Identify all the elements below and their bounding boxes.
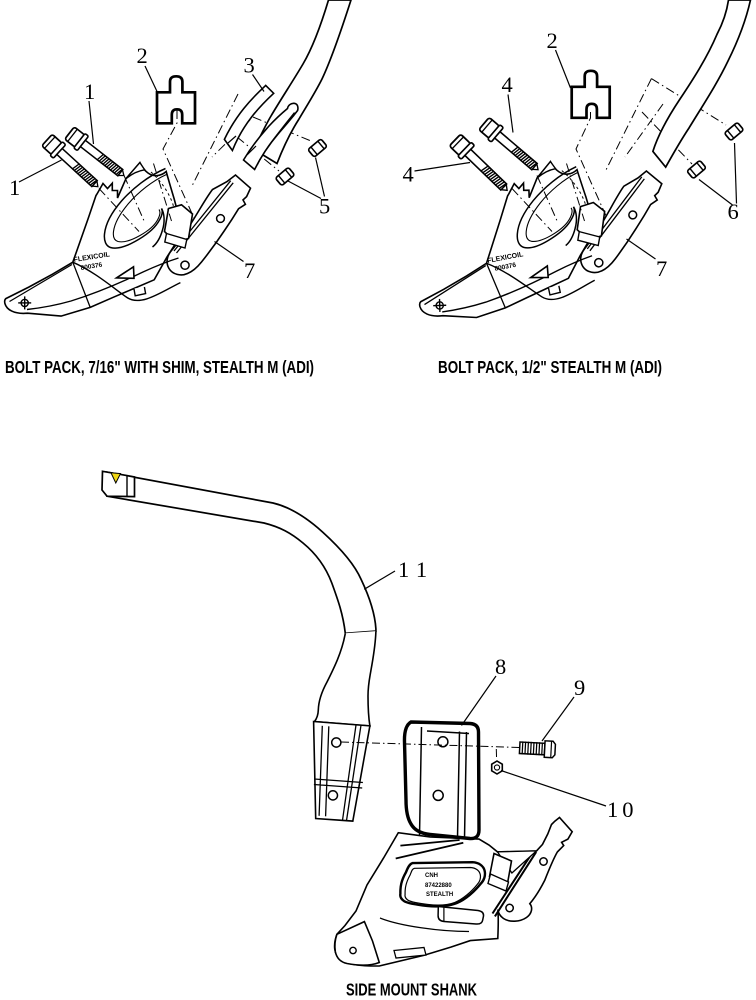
svg-text:2: 2 — [547, 28, 558, 53]
svg-text:BOLT PACK, 7/16" WITH SHIM, ST: BOLT PACK, 7/16" WITH SHIM, STEALTH M (A… — [5, 357, 314, 377]
svg-text:87422880: 87422880 — [425, 883, 452, 889]
svg-text:11: 11 — [398, 557, 427, 582]
svg-text:8: 8 — [495, 654, 506, 679]
svg-text:1: 1 — [84, 79, 95, 104]
svg-text:9: 9 — [574, 675, 585, 700]
svg-text:4: 4 — [403, 162, 414, 187]
svg-text:2: 2 — [137, 43, 148, 68]
svg-text:STEALTH: STEALTH — [426, 892, 453, 898]
svg-text:7: 7 — [244, 258, 255, 283]
svg-text:10: 10 — [607, 797, 634, 822]
svg-text:SIDE MOUNT SHANK: SIDE MOUNT SHANK — [346, 980, 477, 1000]
svg-text:CNH: CNH — [425, 873, 438, 879]
svg-text:7: 7 — [656, 256, 667, 281]
svg-text:5: 5 — [319, 194, 330, 219]
svg-text:BOLT PACK, 1/2" STEALTH M (ADI: BOLT PACK, 1/2" STEALTH M (ADI) — [438, 357, 662, 377]
svg-text:1: 1 — [9, 175, 20, 200]
svg-text:3: 3 — [244, 53, 255, 78]
svg-text:4: 4 — [502, 72, 513, 97]
